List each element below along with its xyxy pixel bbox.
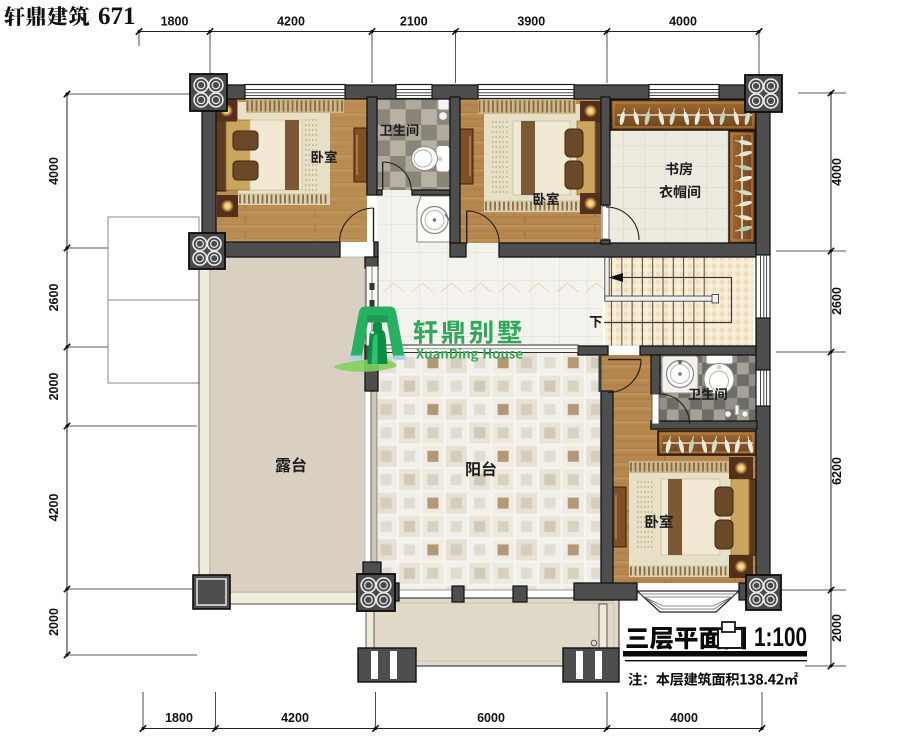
svg-text:2600: 2600 [830,287,844,315]
svg-text:2000: 2000 [47,373,61,401]
svg-text:4200: 4200 [277,15,305,29]
svg-text:4000: 4000 [830,158,844,186]
svg-text:2000: 2000 [47,608,61,636]
svg-text:6000: 6000 [477,711,505,725]
svg-text:6200: 6200 [830,457,844,485]
svg-text:2000: 2000 [830,614,844,642]
svg-text:4200: 4200 [281,711,309,725]
svg-text:1800: 1800 [161,15,189,29]
svg-text:2600: 2600 [47,284,61,312]
svg-text:4000: 4000 [670,711,698,725]
svg-text:671: 671 [98,3,136,30]
svg-text:3900: 3900 [517,15,545,29]
svg-text:4000: 4000 [669,15,697,29]
svg-text:1:100: 1:100 [754,622,807,652]
svg-text:2100: 2100 [400,15,428,29]
svg-text:4000: 4000 [47,157,61,185]
svg-text:1800: 1800 [165,711,193,725]
svg-text:4200: 4200 [47,494,61,522]
